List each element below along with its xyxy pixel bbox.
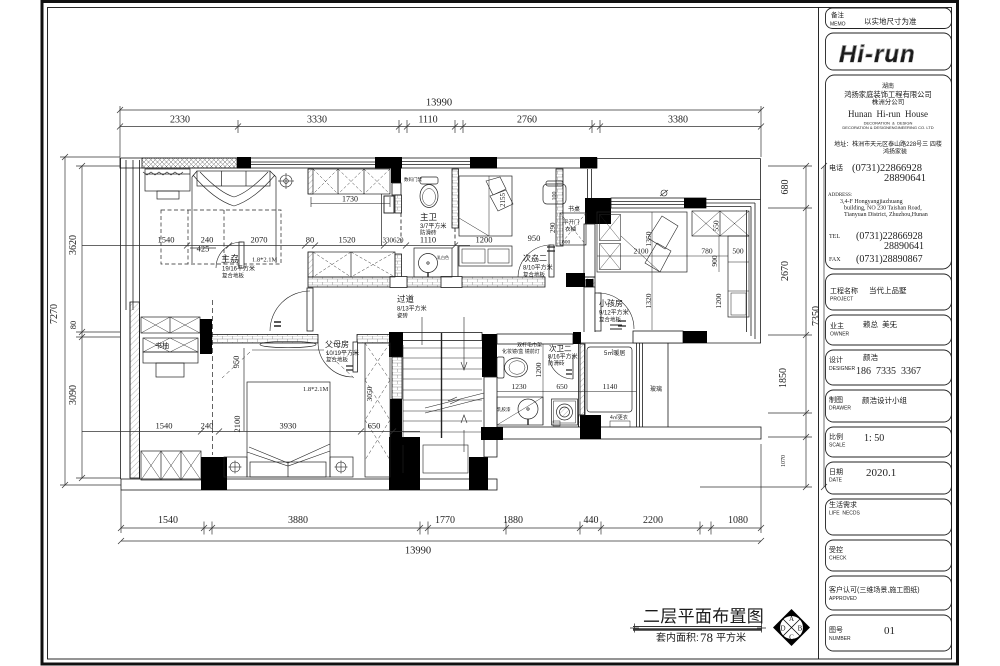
svg-text:19/16平方米: 19/16平方米 — [222, 265, 255, 273]
svg-text:以实地尺寸为准: 以实地尺寸为准 — [864, 16, 917, 26]
svg-text:8/13平方米: 8/13平方米 — [397, 305, 427, 313]
svg-text:550: 550 — [712, 220, 721, 232]
svg-text:数码门禁: 数码门禁 — [404, 176, 422, 183]
svg-text:鸿扬家装: 鸿扬家装 — [883, 148, 907, 156]
svg-text:Tianyuan District, Zhuzhou,Hun: Tianyuan District, Zhuzhou,Hunan — [844, 212, 928, 218]
svg-text:1200: 1200 — [534, 362, 543, 377]
svg-text:玻璃: 玻璃 — [650, 385, 662, 393]
svg-text:次卫二: 次卫二 — [549, 343, 572, 353]
svg-text:套内面积:: 套内面积: — [656, 631, 699, 644]
svg-text:生活需求: 生活需求 — [829, 500, 857, 509]
svg-text:1520: 1520 — [339, 235, 356, 245]
svg-text:13990: 13990 — [405, 546, 431, 557]
svg-text:平方米: 平方米 — [716, 631, 746, 644]
svg-text:3090: 3090 — [68, 385, 79, 405]
svg-text:01: 01 — [884, 625, 895, 637]
svg-text:1.8*2.1M: 1.8*2.1M — [303, 386, 329, 393]
svg-text:次劦二: 次劦二 — [523, 253, 547, 263]
svg-text:650: 650 — [368, 421, 381, 431]
svg-text:78: 78 — [700, 630, 713, 645]
svg-text:2200: 2200 — [643, 515, 663, 526]
svg-text:80: 80 — [68, 321, 78, 330]
svg-text:平开门: 平开门 — [563, 218, 580, 226]
svg-text:B: B — [798, 625, 803, 633]
svg-text:PROJECT: PROJECT — [830, 297, 853, 303]
svg-text:1540: 1540 — [158, 235, 175, 245]
svg-text:小孩房: 小孩房 — [599, 298, 623, 308]
svg-text:5㎡暖居: 5㎡暖居 — [604, 349, 625, 357]
svg-text:复合地板: 复合地板 — [523, 271, 546, 279]
svg-text:4㎡更衣: 4㎡更衣 — [610, 414, 628, 421]
svg-text:乳胶漆: 乳胶漆 — [497, 406, 511, 413]
svg-text:书桌: 书桌 — [568, 205, 580, 213]
svg-text:A: A — [789, 615, 794, 623]
svg-text:500: 500 — [732, 247, 744, 256]
svg-text:2100: 2100 — [232, 416, 242, 433]
svg-text:父母房: 父母房 — [325, 339, 349, 349]
svg-text:SCALE: SCALE — [829, 443, 846, 449]
svg-text:3050: 3050 — [365, 386, 374, 401]
svg-text:7270: 7270 — [49, 304, 60, 324]
svg-text:Hunan Hi-run House: Hunan Hi-run House — [848, 109, 928, 119]
svg-text:240: 240 — [201, 421, 214, 431]
svg-text:主卫: 主卫 — [420, 212, 438, 222]
svg-text:28890641: 28890641 — [884, 241, 924, 252]
svg-text:复合地板: 复合地板 — [599, 316, 622, 324]
svg-text:7350: 7350 — [811, 306, 822, 326]
svg-text:3930: 3930 — [280, 421, 297, 431]
svg-text:双杆毛巾架: 双杆毛巾架 — [517, 342, 542, 349]
svg-text:MEMO: MEMO — [830, 22, 846, 28]
svg-text:600: 600 — [562, 240, 571, 246]
svg-text:1080: 1080 — [728, 515, 748, 526]
svg-text:8/10平方米: 8/10平方米 — [523, 264, 553, 272]
svg-text:440: 440 — [584, 515, 599, 526]
svg-text:1540: 1540 — [158, 515, 178, 526]
svg-text:2100: 2100 — [634, 247, 649, 256]
svg-text:1320: 1320 — [644, 293, 653, 308]
svg-text:日期: 日期 — [829, 468, 843, 476]
svg-text:1350: 1350 — [644, 231, 653, 246]
svg-text:3330: 3330 — [307, 115, 327, 126]
svg-text:受控: 受控 — [829, 545, 843, 554]
svg-text:1140: 1140 — [603, 382, 618, 391]
svg-text:2155: 2155 — [499, 193, 507, 208]
svg-text:瓷砖: 瓷砖 — [397, 312, 409, 320]
svg-text:8/16平方米: 8/16平方米 — [548, 353, 578, 361]
svg-text:9/12平方米: 9/12平方米 — [599, 309, 629, 317]
svg-text:TEL: TEL — [829, 234, 840, 240]
svg-text:650: 650 — [556, 382, 568, 391]
svg-text:NUMBER: NUMBER — [829, 636, 851, 642]
svg-text:二层平面布置图: 二层平面布置图 — [643, 607, 764, 626]
svg-text:化妆镜/盒 镜前灯: 化妆镜/盒 镜前灯 — [502, 348, 540, 355]
svg-text:衣柚: 衣柚 — [565, 225, 577, 233]
svg-text:C: C — [789, 634, 794, 642]
svg-text:设计: 设计 — [829, 355, 843, 364]
svg-text:LIFE NECDS: LIFE NECDS — [829, 511, 861, 517]
svg-text:制图: 制图 — [829, 395, 843, 404]
svg-text:当代上品墅: 当代上品墅 — [869, 285, 907, 295]
svg-text:赖总 美旡: 赖总 美旡 — [863, 319, 898, 329]
svg-text:复合地板: 复合地板 — [326, 356, 349, 364]
svg-text:业主: 业主 — [830, 321, 844, 330]
svg-text:1110: 1110 — [418, 115, 437, 126]
svg-text:1.8*2.1M: 1.8*2.1M — [252, 257, 278, 264]
svg-text:DRAWER: DRAWER — [829, 406, 851, 412]
svg-text:FAX: FAX — [829, 257, 841, 263]
svg-text:鸿扬家庭装饰工程有限公司: 鸿扬家庭装饰工程有限公司 — [844, 90, 932, 99]
svg-text:1200: 1200 — [476, 235, 493, 245]
svg-text:DECORATION & DESIGNENGINEERING: DECORATION & DESIGNENGINEERING CO. LTD — [842, 125, 933, 130]
svg-text:1850: 1850 — [778, 368, 789, 388]
svg-text:2760: 2760 — [517, 115, 537, 126]
svg-text:电话: 电话 — [829, 163, 843, 172]
svg-text:building, NO 230 Taishan Road,: building, NO 230 Taishan Road, — [844, 206, 922, 212]
svg-text:900: 900 — [710, 255, 719, 267]
svg-text:地址：株洲市天元区泰山路228号三 四楼: 地址：株洲市天元区泰山路228号三 四楼 — [834, 140, 942, 148]
svg-text:图号: 图号 — [829, 626, 843, 634]
svg-text:2670: 2670 — [780, 261, 791, 281]
svg-text:1540: 1540 — [156, 421, 173, 431]
svg-text:CHECK: CHECK — [829, 556, 847, 562]
svg-text:ADDRESS:: ADDRESS: — [828, 193, 852, 198]
svg-text:10/19平方米: 10/19平方米 — [326, 349, 359, 357]
svg-text:1070: 1070 — [781, 455, 787, 467]
svg-text:DATE: DATE — [829, 478, 843, 484]
svg-text:复合地板: 复合地板 — [222, 272, 245, 280]
svg-text:1730: 1730 — [342, 195, 358, 204]
svg-text:3380: 3380 — [668, 115, 688, 126]
svg-text:工程名称: 工程名称 — [830, 286, 858, 295]
svg-text:2070: 2070 — [251, 235, 268, 245]
svg-text:950: 950 — [528, 233, 541, 243]
svg-text:3,4-F Hongyangjiazhuang: 3,4-F Hongyangjiazhuang — [840, 199, 903, 205]
svg-text:颜浩: 颜浩 — [863, 352, 878, 362]
svg-text:2330: 2330 — [170, 115, 190, 126]
svg-text:(0731)28890867: (0731)28890867 — [856, 254, 923, 265]
svg-text:乳白色: 乳白色 — [437, 254, 449, 260]
svg-text:3880: 3880 — [288, 515, 308, 526]
svg-text:1110: 1110 — [420, 235, 436, 245]
svg-text:3/7平方米: 3/7平方米 — [420, 222, 446, 230]
svg-text:680: 680 — [780, 180, 791, 195]
svg-text:3620: 3620 — [68, 235, 79, 255]
svg-text:OWNER: OWNER — [830, 332, 850, 338]
svg-text:DESIGNER: DESIGNER — [829, 366, 856, 372]
svg-text:湖南: 湖南 — [882, 82, 894, 90]
svg-text:株洲分公司: 株洲分公司 — [872, 97, 905, 106]
svg-text:1: 50: 1: 50 — [864, 433, 884, 444]
svg-text:100: 100 — [552, 192, 558, 201]
svg-text:186 7335 3367: 186 7335 3367 — [856, 366, 921, 377]
svg-text:290: 290 — [549, 222, 557, 233]
svg-text:防滑砖: 防滑砖 — [548, 359, 565, 367]
svg-text:425: 425 — [197, 244, 210, 254]
svg-text:APPROVED: APPROVED — [829, 596, 857, 602]
svg-text:1770: 1770 — [435, 515, 455, 526]
svg-text:书柚: 书柚 — [155, 341, 169, 350]
svg-text:比例: 比例 — [829, 432, 843, 441]
svg-text:28890641: 28890641 — [884, 173, 926, 184]
svg-text:950: 950 — [231, 356, 241, 369]
svg-text:过道: 过道 — [397, 294, 415, 304]
svg-text:13990: 13990 — [426, 98, 452, 109]
svg-text:1230: 1230 — [512, 382, 527, 391]
svg-text:客户认可(三维场景,施工图纸): 客户认可(三维场景,施工图纸) — [829, 585, 920, 594]
svg-text:1880: 1880 — [503, 515, 523, 526]
svg-text:D: D — [780, 625, 785, 633]
svg-text:1200: 1200 — [714, 293, 723, 308]
svg-text:颜浩设计小组: 颜浩设计小组 — [862, 395, 907, 405]
svg-text:主劦: 主劦 — [221, 253, 239, 264]
svg-text:2020.1: 2020.1 — [866, 467, 896, 479]
svg-text:780: 780 — [701, 247, 713, 256]
svg-text:备注: 备注 — [831, 10, 845, 19]
